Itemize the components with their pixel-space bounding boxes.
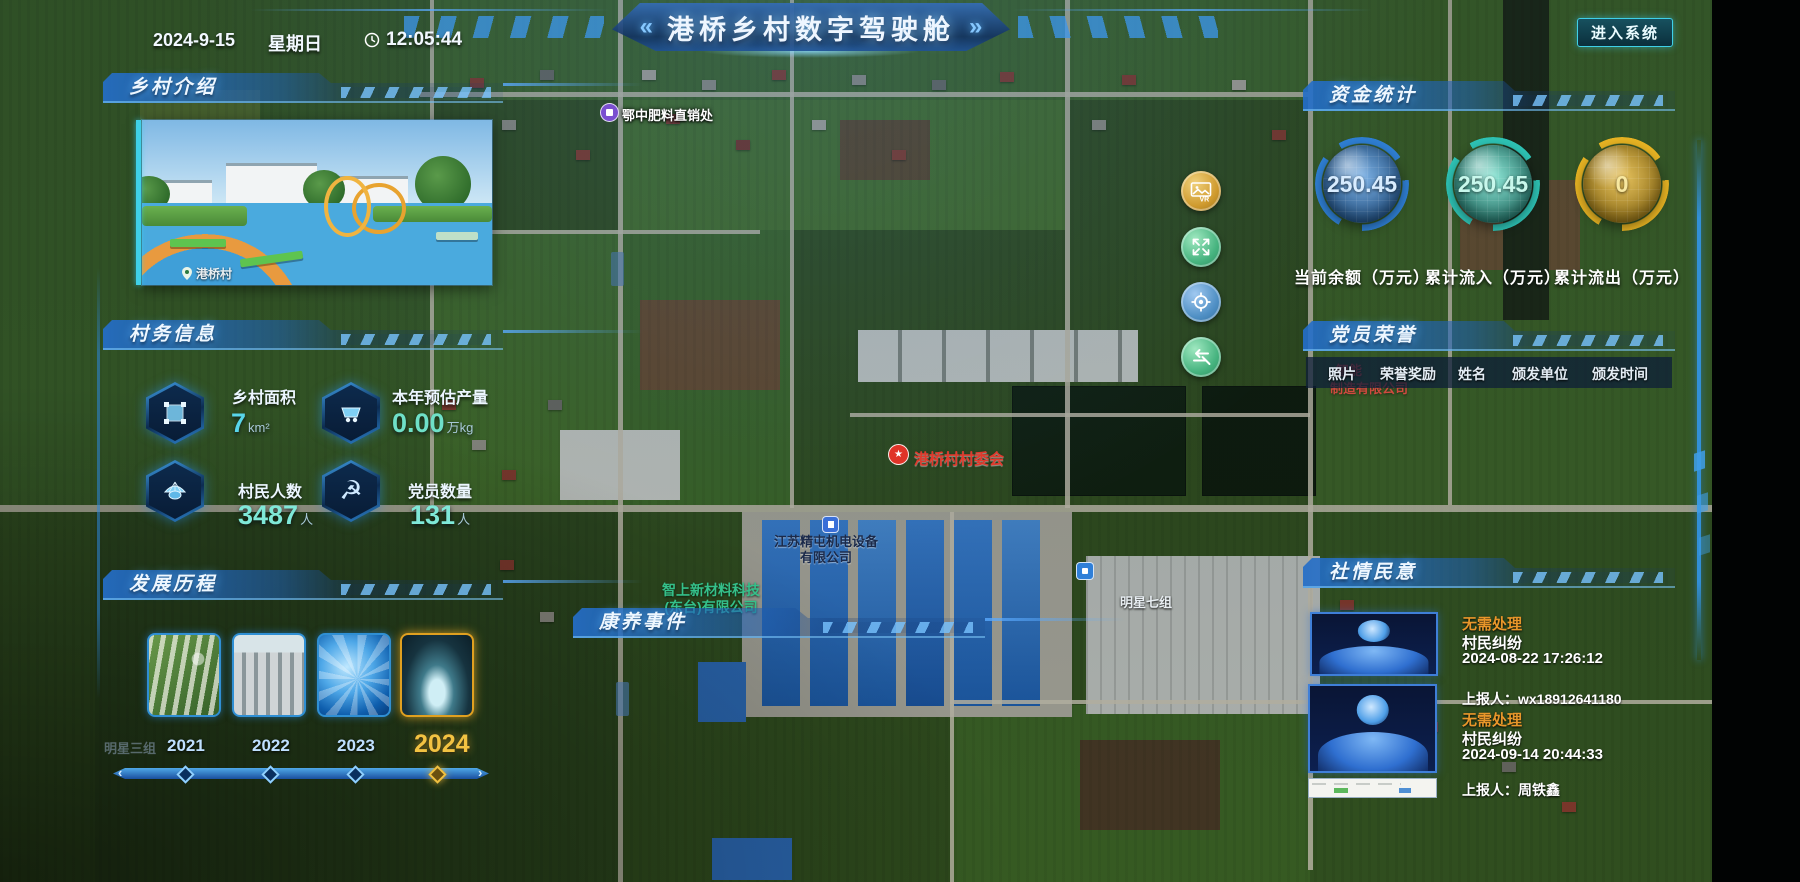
sentiment-avatar[interactable]: [1308, 684, 1437, 773]
page-title: « 港桥乡村数字驾驶舱 »: [612, 3, 1010, 51]
group-seven-pin[interactable]: [1076, 562, 1094, 580]
column-issue-date: 颁发时间: [1592, 364, 1648, 384]
company2-line1: 智上新材料科技: [662, 582, 760, 599]
stat-label: 党员数量: [408, 478, 472, 502]
locate-button[interactable]: [1181, 282, 1221, 322]
stat-label: 本年预估产量: [392, 384, 488, 408]
fertilizer-store-pin[interactable]: [600, 103, 619, 122]
panel-header-village-info: 村务信息: [103, 320, 503, 350]
chevron-right-icon: »: [969, 13, 982, 41]
page-title-text: 港桥乡村数字驾驶舱: [667, 8, 955, 47]
sentiment-attachment-thumb[interactable]: [1308, 778, 1437, 798]
year-2021[interactable]: 2021: [167, 736, 205, 756]
header-stripes: [823, 622, 973, 633]
area-stat-hex: [146, 382, 204, 444]
panel-title: 康养事件: [599, 611, 687, 635]
svg-text:VR: VR: [1200, 197, 1210, 204]
development-thumb-2021[interactable]: [147, 633, 221, 717]
sentiment-reporter: 上报人：wx18912641180: [1462, 689, 1622, 709]
stat-value: 0.00万kg: [392, 408, 473, 439]
development-thumb-2022[interactable]: [232, 633, 306, 717]
photo-caption: 港桥村: [182, 265, 232, 282]
company1-pin[interactable]: [822, 516, 839, 533]
village-photo[interactable]: [142, 120, 492, 285]
panel-title: 社情民意: [1329, 561, 1417, 585]
weekday-text: 星期日: [268, 30, 322, 56]
gauge-value: 250.45: [1315, 137, 1409, 231]
panel-title: 资金统计: [1329, 84, 1417, 108]
chevron-left-icon: «: [640, 13, 653, 41]
panel-title: 村务信息: [129, 323, 217, 347]
gauge-label: 累计流入（万元）: [1423, 264, 1563, 288]
date-text: 2024-9-15: [153, 30, 235, 51]
village-committee-pin[interactable]: ★: [888, 444, 909, 465]
year-2022[interactable]: 2022: [252, 736, 290, 756]
header-stripes: [1513, 335, 1663, 346]
header-stripes: [341, 584, 491, 595]
header-stripes: [1513, 572, 1663, 583]
gauge-inflow: 250.45: [1446, 137, 1540, 231]
top-accent-line: [250, 9, 610, 11]
road-label-chip: [611, 252, 624, 286]
column-name: 姓名: [1458, 364, 1486, 384]
banner-right-stripes: [1018, 16, 1218, 38]
vr-panorama-button[interactable]: VR: [1181, 171, 1221, 211]
party-stat-hex: ☭: [322, 460, 380, 522]
stat-value: 131人: [410, 500, 470, 531]
development-thumb-2023[interactable]: [317, 633, 391, 717]
clock-icon: [364, 32, 380, 53]
panel-title: 党员荣誉: [1329, 324, 1417, 348]
panel-header-village-intro: 乡村介绍: [103, 73, 503, 103]
villagers-stat-hex: [146, 460, 204, 522]
stat-value: 3487人: [238, 500, 313, 531]
swap-arrows-icon: [1189, 345, 1213, 369]
road-label-chip: [616, 682, 629, 716]
expand-fullscreen-button[interactable]: [1181, 227, 1221, 267]
panel-header-health-events: 康养事件: [573, 608, 985, 638]
building-icon: [828, 521, 834, 528]
year-2024-selected[interactable]: 2024: [414, 730, 470, 759]
company1-line1: 江苏精屯机电设备: [774, 534, 878, 550]
timeline-left-arrow[interactable]: ‹: [118, 765, 122, 780]
stat-value: 7km²: [231, 408, 270, 439]
expand-arrows-icon: [1190, 236, 1212, 258]
stat-label: 村民人数: [238, 478, 302, 502]
sentiment-status: 无需处理: [1462, 613, 1522, 634]
right-frame-accent: [1697, 140, 1701, 660]
header-tail-line: [503, 330, 643, 333]
screen-black-strip: [1712, 0, 1800, 882]
header-tail-line: [503, 83, 643, 86]
switch-layer-button[interactable]: [1181, 337, 1221, 377]
header-tail-line: [503, 580, 643, 583]
panel-header-development: 发展历程: [103, 570, 503, 600]
timeline-right-arrow[interactable]: ›: [478, 765, 482, 780]
location-pin-icon: [182, 267, 192, 280]
gauge-value: 250.45: [1446, 137, 1540, 231]
company1-line2: 有限公司: [774, 550, 878, 566]
development-thumb-2024[interactable]: [400, 633, 474, 717]
column-award: 荣誉奖励: [1380, 364, 1436, 384]
gauge-outflow: 0: [1575, 137, 1669, 231]
vr-image-icon: VR: [1189, 179, 1213, 203]
header-tail-line: [985, 618, 1125, 621]
header-stripes: [341, 334, 491, 345]
photo-left-accent: [136, 120, 141, 285]
sentiment-datetime: 2024-09-14 20:44:33: [1462, 746, 1603, 763]
party-honor-table-header: 照片 荣誉奖励 姓名 颁发单位 颁发时间: [1306, 357, 1672, 388]
panel-header-sentiment: 社情民意: [1303, 558, 1675, 588]
sentiment-datetime: 2024-08-22 17:26:12: [1462, 650, 1603, 667]
year-2023[interactable]: 2023: [337, 736, 375, 756]
right-frame-chip: [1694, 450, 1705, 472]
gauge-value: 0: [1575, 137, 1669, 231]
sentiment-status: 无需处理: [1462, 709, 1522, 730]
right-frame-chip: [1697, 492, 1708, 514]
panel-header-funds: 资金统计: [1303, 81, 1675, 111]
panel-header-party-honor: 党员荣誉: [1303, 321, 1675, 351]
sentiment-reporter: 上报人：周铁鑫: [1462, 780, 1560, 800]
sentiment-avatar[interactable]: [1310, 612, 1438, 676]
yield-stat-hex: [322, 382, 380, 444]
gauge-label: 当前余额（万元）: [1292, 264, 1432, 288]
panel-title: 发展历程: [129, 573, 217, 597]
village-committee-label[interactable]: 港桥村村委会: [914, 448, 1004, 469]
top-accent-line: [1012, 9, 1372, 11]
time-text: 12:05:44: [386, 29, 462, 51]
dashboard-root: 鄂中肥料直销处 ★ 港桥村村委会 江苏精屯机电设备 有限公司 智上新材料科技 (…: [0, 0, 1800, 882]
place-icon: [1082, 568, 1088, 574]
gauge-balance: 250.45: [1315, 137, 1409, 231]
left-frame-accent: [97, 268, 100, 698]
group-seven-label[interactable]: 明星七组: [1120, 592, 1172, 611]
column-photo: 照片: [1328, 364, 1356, 384]
panel-title: 乡村介绍: [129, 76, 217, 100]
header-stripes: [341, 87, 491, 98]
stat-label: 乡村面积: [232, 384, 296, 408]
gauge-label: 累计流出（万元）: [1552, 264, 1692, 288]
column-issuer: 颁发单位: [1512, 364, 1568, 384]
company1-label[interactable]: 江苏精屯机电设备 有限公司: [774, 534, 878, 566]
fertilizer-store-label[interactable]: 鄂中肥料直销处: [622, 105, 713, 124]
header-stripes: [1513, 95, 1663, 106]
group-three-label: 明星三组: [104, 738, 156, 757]
enter-system-button[interactable]: 进入系统: [1577, 18, 1673, 47]
right-frame-chip: [1699, 534, 1710, 556]
photo-caption-text: 港桥村: [196, 265, 232, 282]
store-icon: [606, 109, 613, 116]
crosshair-icon: [1189, 290, 1213, 314]
